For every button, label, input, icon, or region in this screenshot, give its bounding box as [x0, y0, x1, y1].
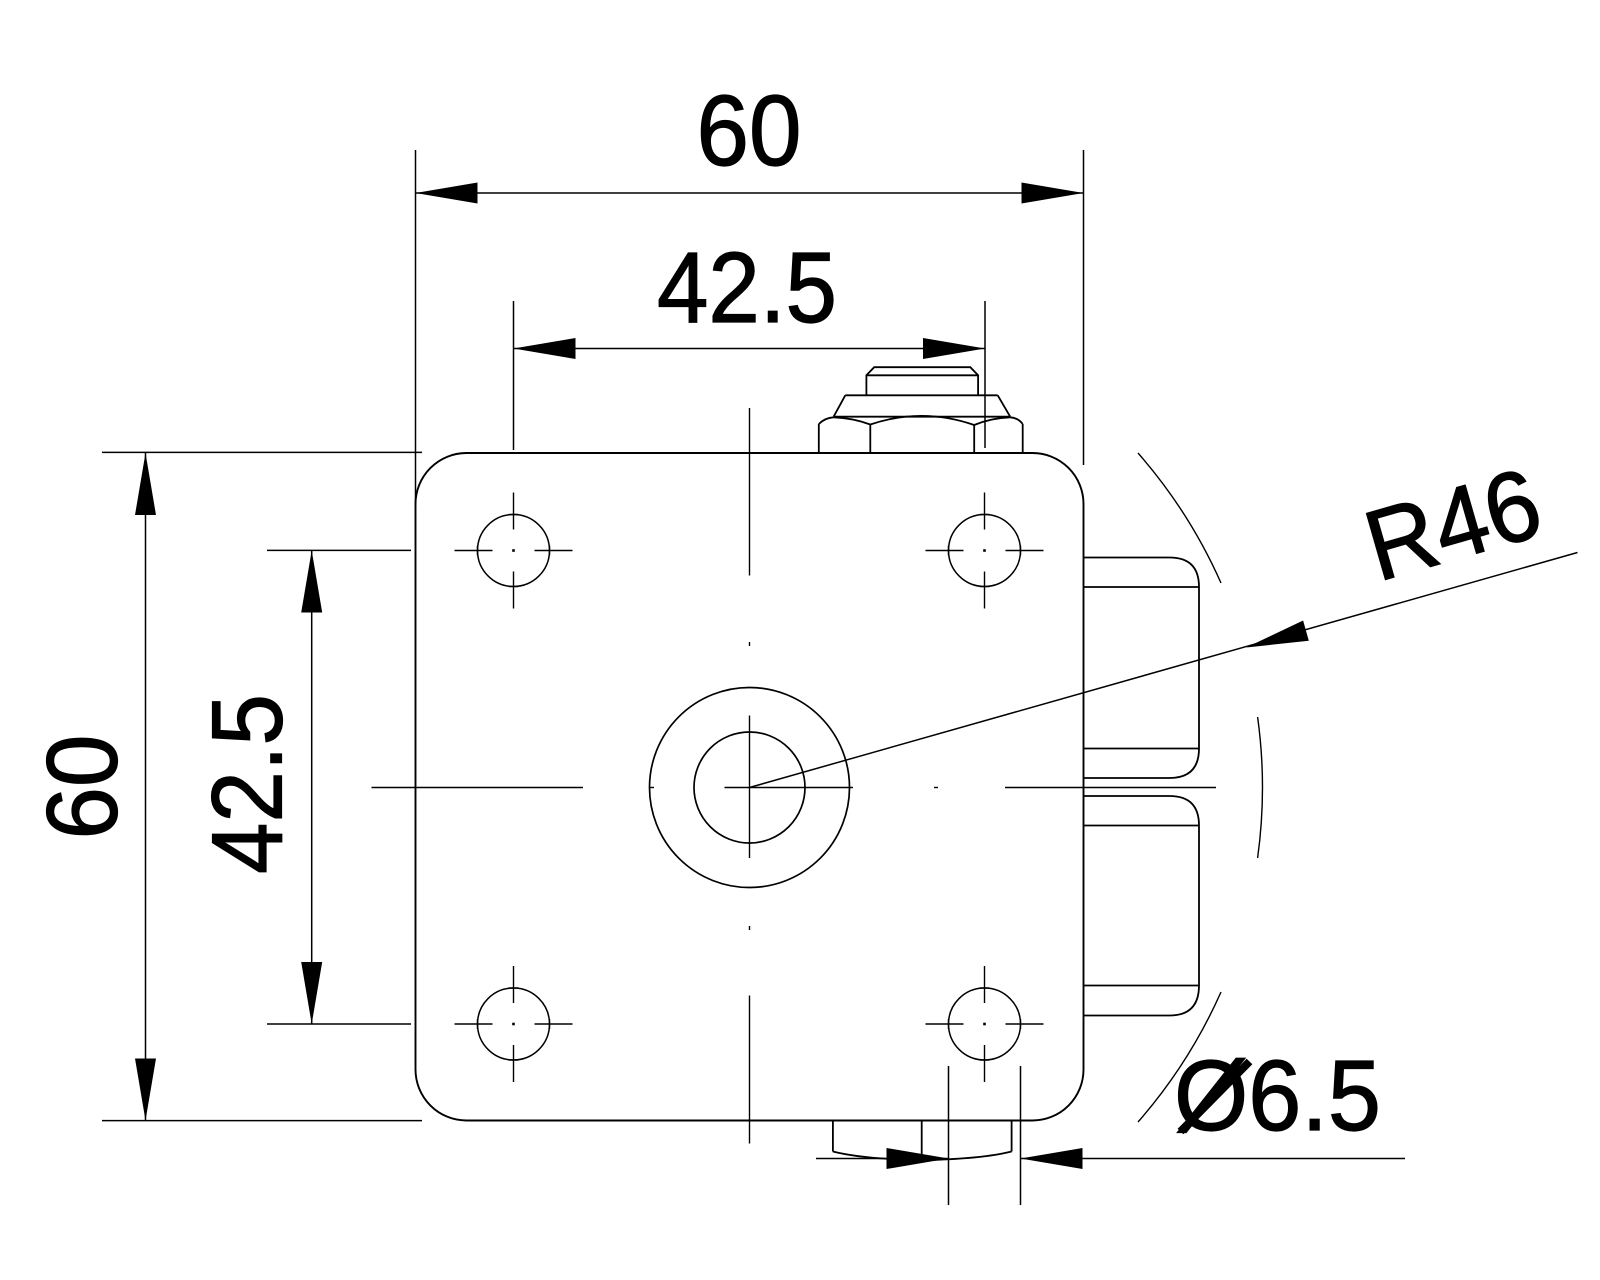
svg-text:Ø6.5: Ø6.5: [1174, 1040, 1381, 1152]
svg-text:60: 60: [27, 735, 139, 840]
svg-text:42.5: 42.5: [192, 694, 304, 874]
svg-text:42.5: 42.5: [657, 232, 837, 344]
svg-text:60: 60: [697, 75, 802, 187]
